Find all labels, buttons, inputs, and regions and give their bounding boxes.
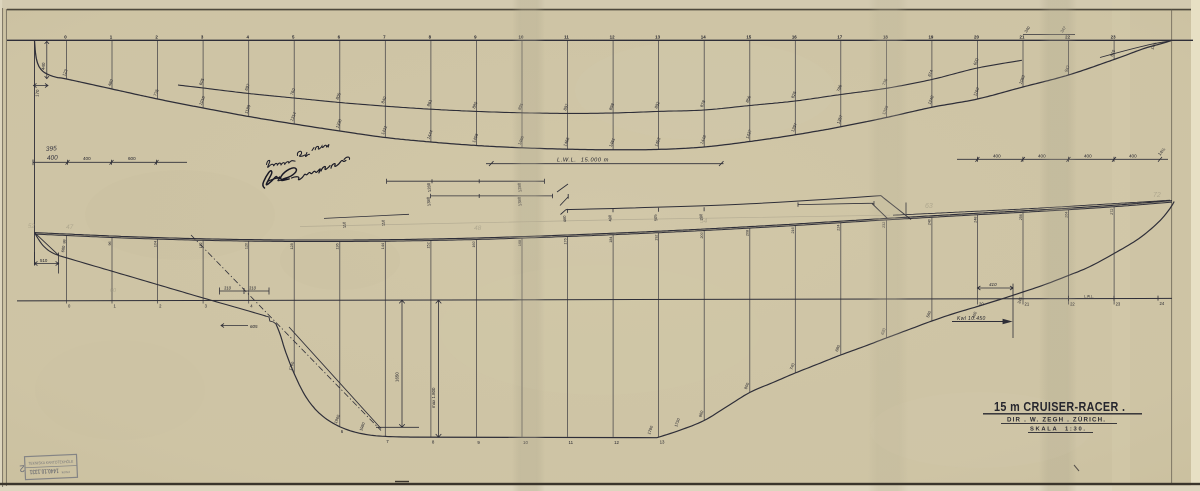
svg-text:L.W.L.: L.W.L. <box>1084 294 1094 298</box>
svg-text:170: 170 <box>35 89 41 97</box>
svg-text:176: 176 <box>563 238 567 244</box>
svg-text:440: 440 <box>41 62 47 70</box>
svg-text:136: 136 <box>336 243 340 249</box>
svg-text:11: 11 <box>569 440 574 445</box>
svg-text:200: 200 <box>700 232 704 238</box>
svg-text:400: 400 <box>993 154 1001 159</box>
svg-text:15: 15 <box>746 34 751 39</box>
svg-text:24: 24 <box>1160 301 1165 306</box>
svg-text:21: 21 <box>1020 34 1025 39</box>
svg-text:128: 128 <box>290 243 294 249</box>
svg-text:15 m CRUISER-RACER .: 15 m CRUISER-RACER . <box>994 399 1125 414</box>
svg-text:12: 12 <box>610 34 615 39</box>
svg-text:14: 14 <box>701 34 706 39</box>
svg-text:11: 11 <box>564 34 569 39</box>
svg-text:1280: 1280 <box>426 182 432 192</box>
svg-text:120: 120 <box>245 243 249 249</box>
svg-text:20: 20 <box>974 34 979 39</box>
svg-text:52: 52 <box>28 224 35 230</box>
svg-text:23: 23 <box>1116 302 1121 307</box>
svg-text:310: 310 <box>249 286 257 291</box>
svg-text:63: 63 <box>925 203 933 210</box>
svg-text:21: 21 <box>1025 302 1030 307</box>
svg-text:184: 184 <box>609 237 613 243</box>
svg-text:1440.10.1331: 1440.10.1331 <box>29 467 59 475</box>
svg-text:54: 54 <box>700 218 708 225</box>
svg-text:310: 310 <box>224 286 232 291</box>
svg-text:256: 256 <box>1019 214 1023 220</box>
svg-text:kortet: kortet <box>62 470 70 474</box>
svg-text:510: 510 <box>40 258 48 263</box>
svg-text:17: 17 <box>837 34 842 39</box>
svg-text:400: 400 <box>47 154 59 162</box>
svg-text:272: 272 <box>1110 209 1114 215</box>
svg-text:400: 400 <box>1084 154 1092 159</box>
svg-text:16: 16 <box>792 34 797 39</box>
svg-text:13: 13 <box>660 440 665 445</box>
svg-text:400: 400 <box>83 156 91 161</box>
svg-text:240: 240 <box>928 219 932 225</box>
svg-text:1650: 1650 <box>395 372 400 382</box>
svg-text:192: 192 <box>654 235 658 241</box>
svg-text:1380: 1380 <box>425 196 431 206</box>
svg-text:13: 13 <box>655 34 660 39</box>
svg-text:max 1.800: max 1.800 <box>431 387 436 408</box>
svg-text:12: 12 <box>614 440 619 445</box>
svg-text:96: 96 <box>108 241 112 245</box>
svg-text:DIR . W. ZEGH . ZÜRICH.: DIR . W. ZEGH . ZÜRICH. <box>1007 417 1105 424</box>
svg-text:400: 400 <box>1129 154 1137 159</box>
svg-text:208: 208 <box>746 230 750 236</box>
svg-text:88: 88 <box>62 239 66 243</box>
svg-text:160: 160 <box>472 241 476 247</box>
svg-text:23: 23 <box>1111 34 1116 39</box>
svg-text:47: 47 <box>66 224 74 231</box>
svg-text:600: 600 <box>128 156 136 161</box>
svg-text:395: 395 <box>46 145 58 153</box>
svg-text:19: 19 <box>928 34 933 39</box>
svg-text:216: 216 <box>791 227 795 233</box>
svg-text:152: 152 <box>427 242 431 248</box>
svg-text:248: 248 <box>973 217 977 223</box>
svg-text:410: 410 <box>989 282 997 287</box>
svg-text:48: 48 <box>474 225 482 232</box>
svg-text:L.W.L. 15.000 m: L.W.L. 15.000 m <box>557 158 609 164</box>
svg-text:72: 72 <box>1153 192 1161 199</box>
svg-text:224: 224 <box>837 225 841 231</box>
svg-text:605: 605 <box>250 324 258 329</box>
svg-text:60: 60 <box>110 288 117 294</box>
svg-text:104: 104 <box>153 241 157 247</box>
svg-text:144: 144 <box>381 243 385 249</box>
svg-text:2: 2 <box>19 462 25 473</box>
